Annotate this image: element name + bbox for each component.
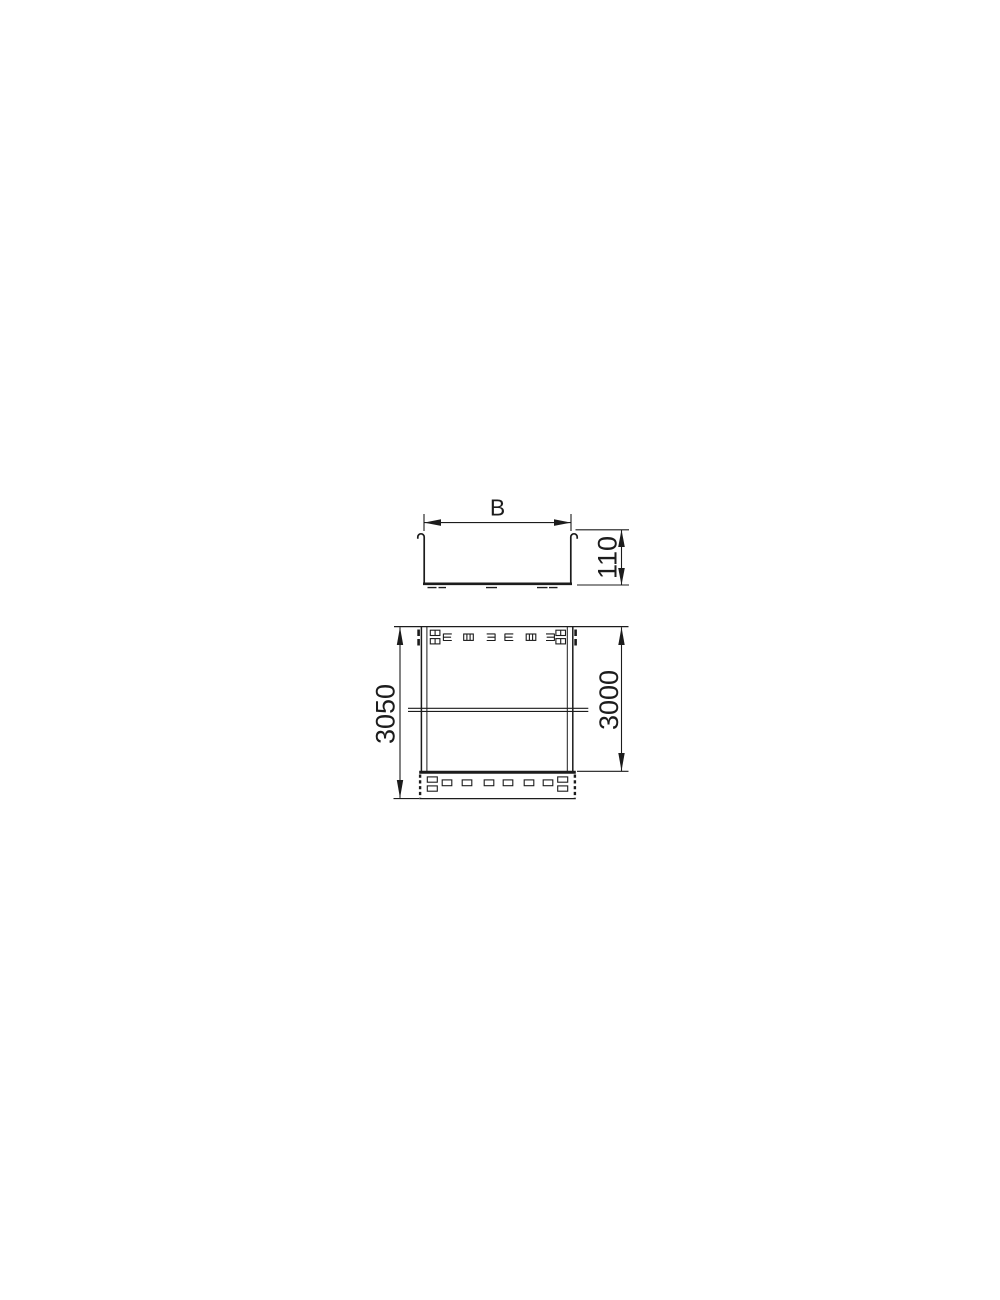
perforation-slot bbox=[543, 780, 553, 786]
height-dimension: 110 bbox=[576, 530, 630, 585]
perforation-slot bbox=[487, 634, 495, 641]
perforation-slot bbox=[484, 780, 494, 786]
cable-tray-drawing: B 110 bbox=[0, 0, 1000, 1300]
rail-length-dimension: 3000 bbox=[577, 627, 629, 771]
dimension-arrow-left bbox=[424, 519, 441, 526]
width-dimension: B bbox=[424, 495, 571, 532]
width-dimension-label: B bbox=[490, 495, 505, 521]
technical-drawing-page: B 110 bbox=[0, 0, 1000, 1300]
butt-joint-line bbox=[408, 708, 588, 711]
perforation-slot bbox=[505, 634, 513, 641]
perforation-slot bbox=[464, 634, 474, 640]
perforation-slot bbox=[524, 780, 534, 786]
perforation-slot bbox=[443, 634, 451, 641]
perforation-pair-right bbox=[558, 777, 568, 791]
dimension-arrow-up bbox=[397, 627, 403, 645]
perforation-slot bbox=[546, 634, 554, 641]
tray-side-rails bbox=[421, 627, 572, 772]
perforation-pair-right bbox=[556, 630, 566, 644]
tray-profile bbox=[418, 534, 577, 588]
top-perforation-row bbox=[430, 630, 565, 644]
rail-length-label: 3000 bbox=[594, 670, 624, 730]
perforation-slot bbox=[526, 634, 536, 640]
front-view-cross-section: B 110 bbox=[418, 495, 629, 588]
perforation-pair-left bbox=[430, 630, 440, 644]
dimension-arrow-up bbox=[618, 627, 624, 645]
coupler-perforation-row bbox=[427, 777, 567, 791]
perforation-slot bbox=[462, 780, 472, 786]
plan-view-top: 3050 3000 bbox=[371, 627, 629, 799]
side-rail-right-with-curl bbox=[571, 534, 577, 584]
dimension-arrow-down bbox=[397, 780, 403, 798]
coupler-band bbox=[419, 772, 576, 798]
side-rail-left-with-curl bbox=[418, 534, 424, 584]
overall-length-label: 3050 bbox=[371, 684, 401, 744]
dimension-arrow-down bbox=[618, 753, 624, 771]
perforation-slot bbox=[442, 780, 452, 786]
overall-length-dimension: 3050 bbox=[371, 627, 420, 799]
perforation-pair-left bbox=[427, 777, 437, 791]
dimension-arrow-right bbox=[554, 519, 571, 526]
perforation-slot bbox=[503, 780, 513, 786]
height-dimension-label: 110 bbox=[593, 536, 623, 579]
